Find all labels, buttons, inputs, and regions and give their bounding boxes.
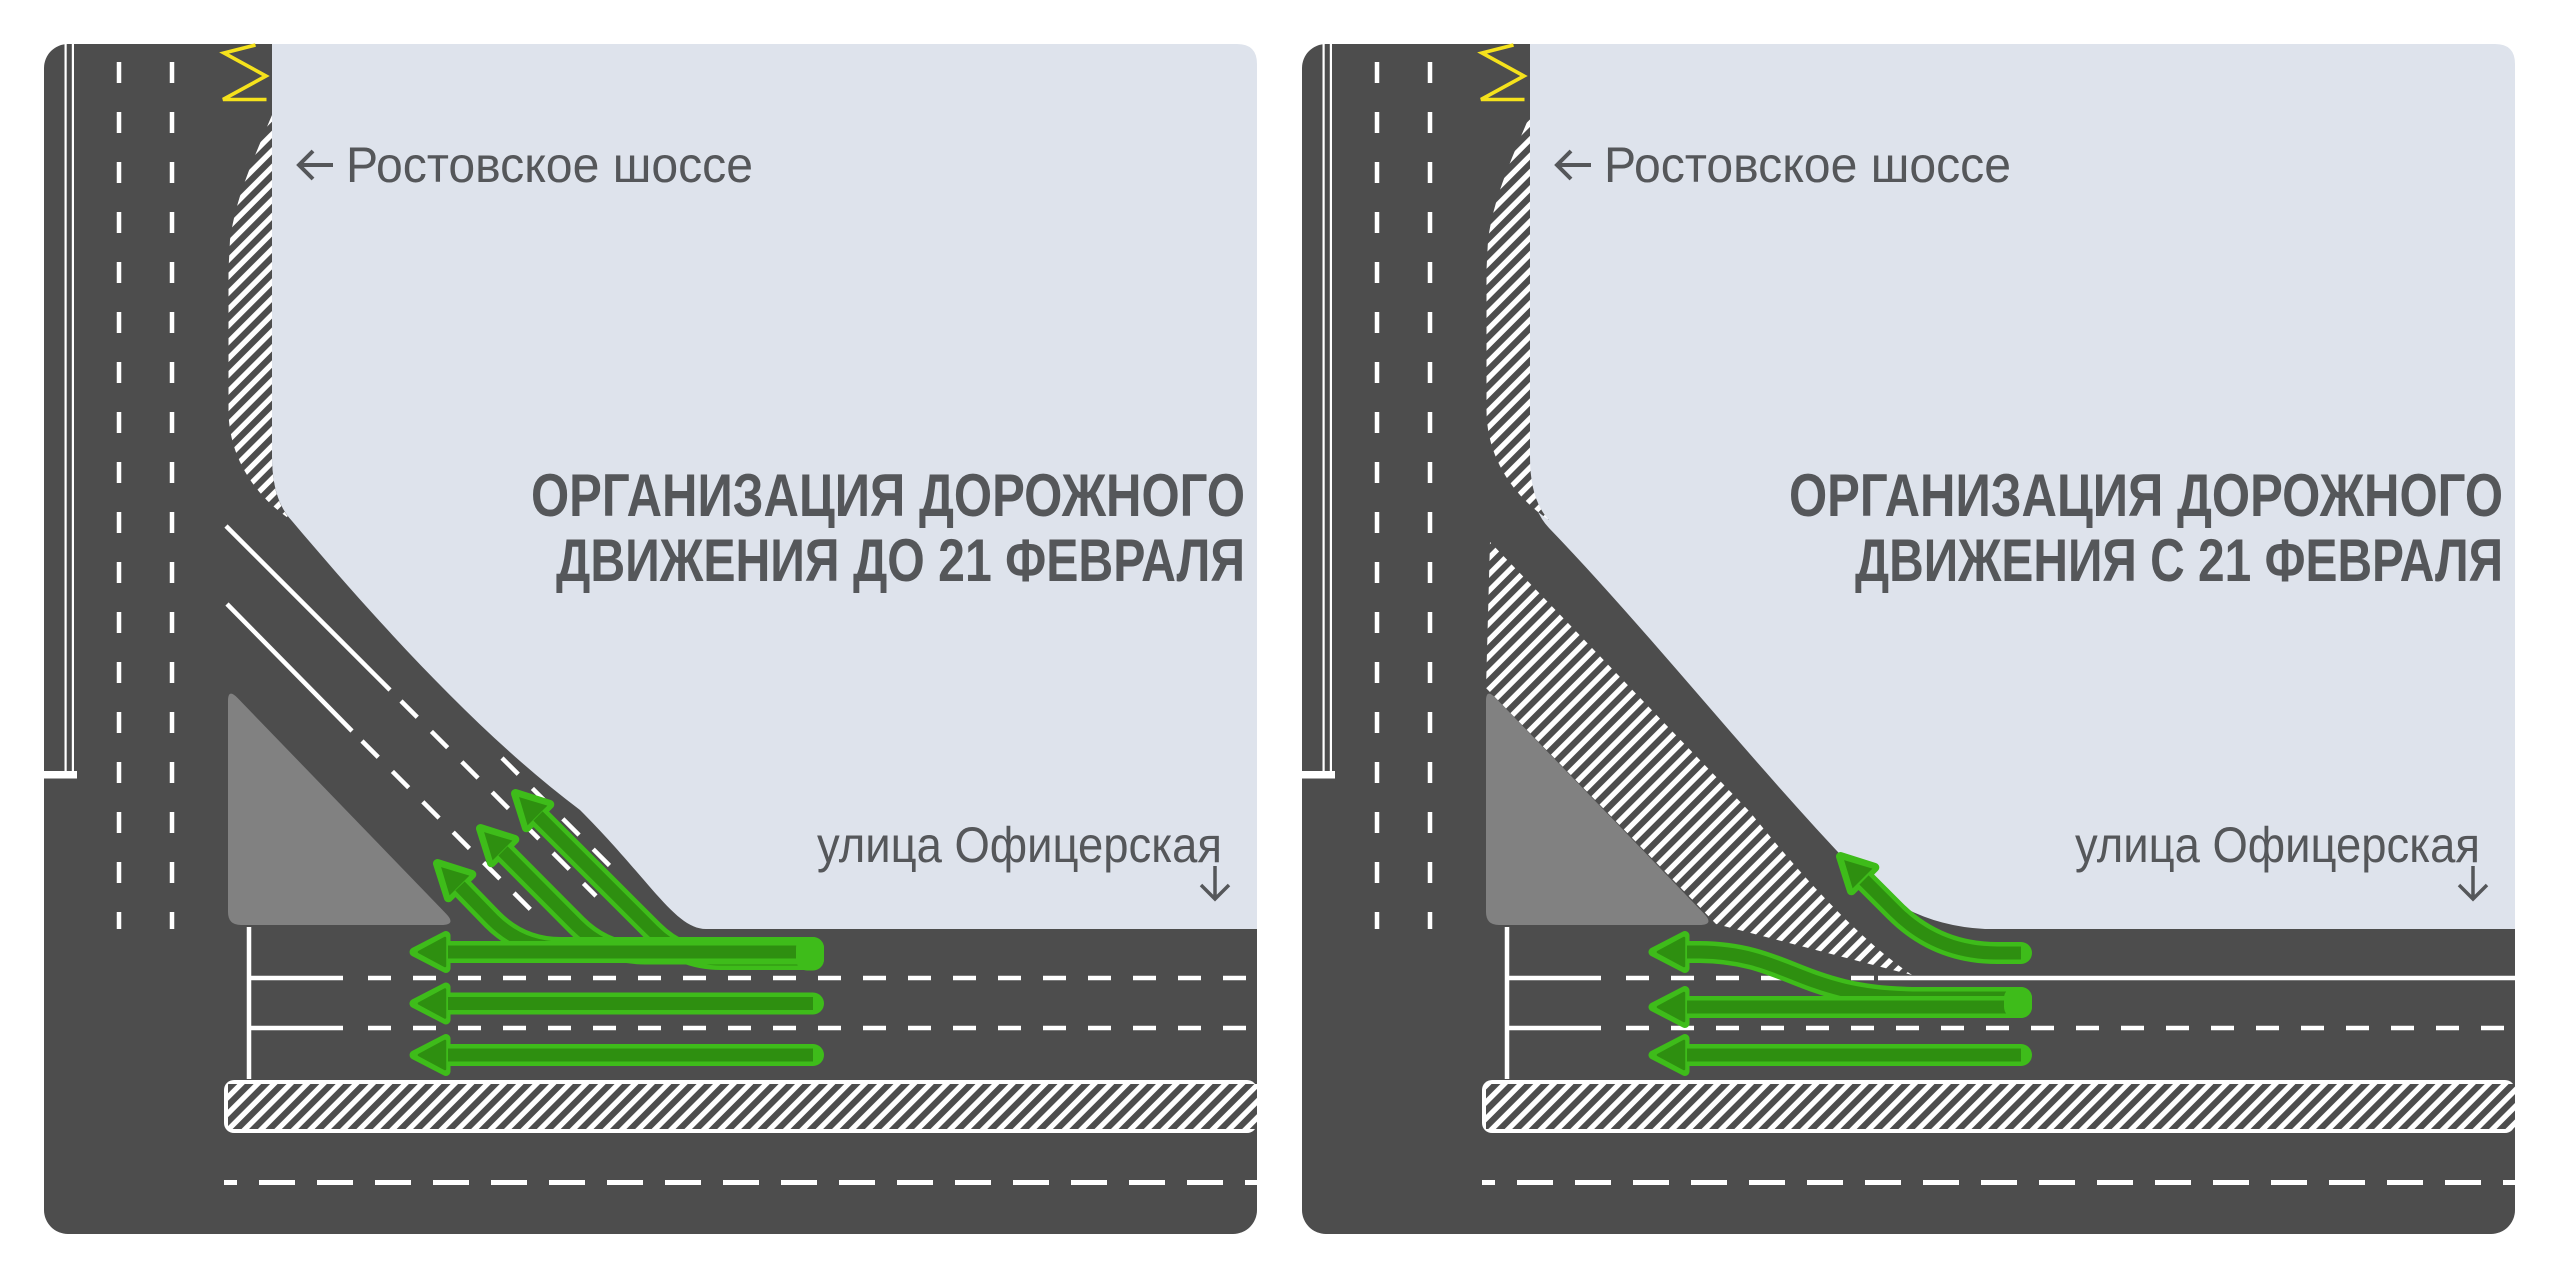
svg-text:Ростовское шоссе: Ростовское шоссе xyxy=(1604,137,2011,193)
svg-text:ОРГАНИЗАЦИЯ ДОРОЖНОГО: ОРГАНИЗАЦИЯ ДОРОЖНОГО xyxy=(531,462,1245,529)
svg-text:улица Офицерская: улица Офицерская xyxy=(2075,817,2480,873)
svg-text:Ростовское шоссе: Ростовское шоссе xyxy=(346,137,753,193)
svg-text:улица Офицерская: улица Офицерская xyxy=(817,817,1222,873)
svg-text:ДВИЖЕНИЯ ДО 21 ФЕВРАЛЯ: ДВИЖЕНИЯ ДО 21 ФЕВРАЛЯ xyxy=(556,527,1245,594)
svg-text:ДВИЖЕНИЯ С 21 ФЕВРАЛЯ: ДВИЖЕНИЯ С 21 ФЕВРАЛЯ xyxy=(1855,527,2503,594)
svg-text:ОРГАНИЗАЦИЯ ДОРОЖНОГО: ОРГАНИЗАЦИЯ ДОРОЖНОГО xyxy=(1789,462,2503,529)
